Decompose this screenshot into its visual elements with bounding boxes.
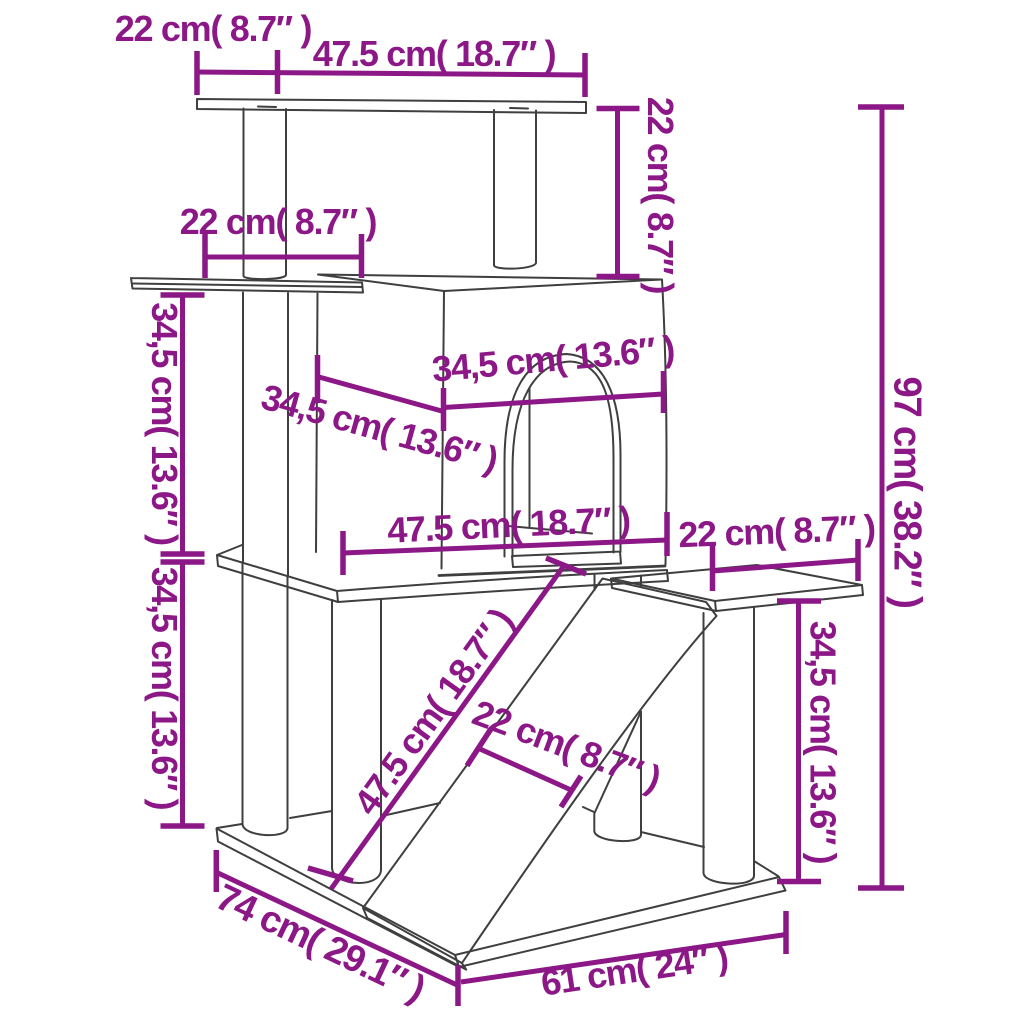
svg-text:97 cm( 38.2″ ): 97 cm( 38.2″ ): [886, 376, 929, 607]
svg-text:22 cm( 8.7″ ): 22 cm( 8.7″ ): [115, 8, 312, 49]
svg-text:34,5 cm( 13.6″ ): 34,5 cm( 13.6″ ): [144, 567, 185, 810]
svg-text:34,5 cm( 13.6″ ): 34,5 cm( 13.6″ ): [144, 302, 185, 545]
svg-text:34,5 cm( 13.6″ ): 34,5 cm( 13.6″ ): [803, 621, 844, 864]
svg-text:47.5 cm( 18.7″ ): 47.5 cm( 18.7″ ): [313, 33, 556, 74]
svg-text:22 cm( 8.7″ ): 22 cm( 8.7″ ): [678, 507, 876, 556]
svg-text:22 cm( 8.7″ ): 22 cm( 8.7″ ): [640, 97, 681, 294]
svg-text:22 cm( 8.7″ ): 22 cm( 8.7″ ): [180, 201, 377, 242]
